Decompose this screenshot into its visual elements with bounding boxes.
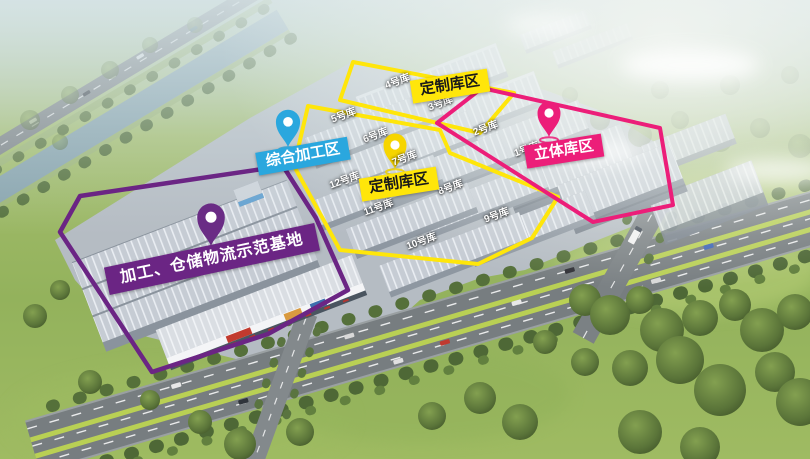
scene-render (0, 0, 810, 459)
aerial-site-map: 1号库 2号库 3号库 4号库 5号库 6号库 7号库 8号库 9号库 10号库… (0, 0, 810, 459)
